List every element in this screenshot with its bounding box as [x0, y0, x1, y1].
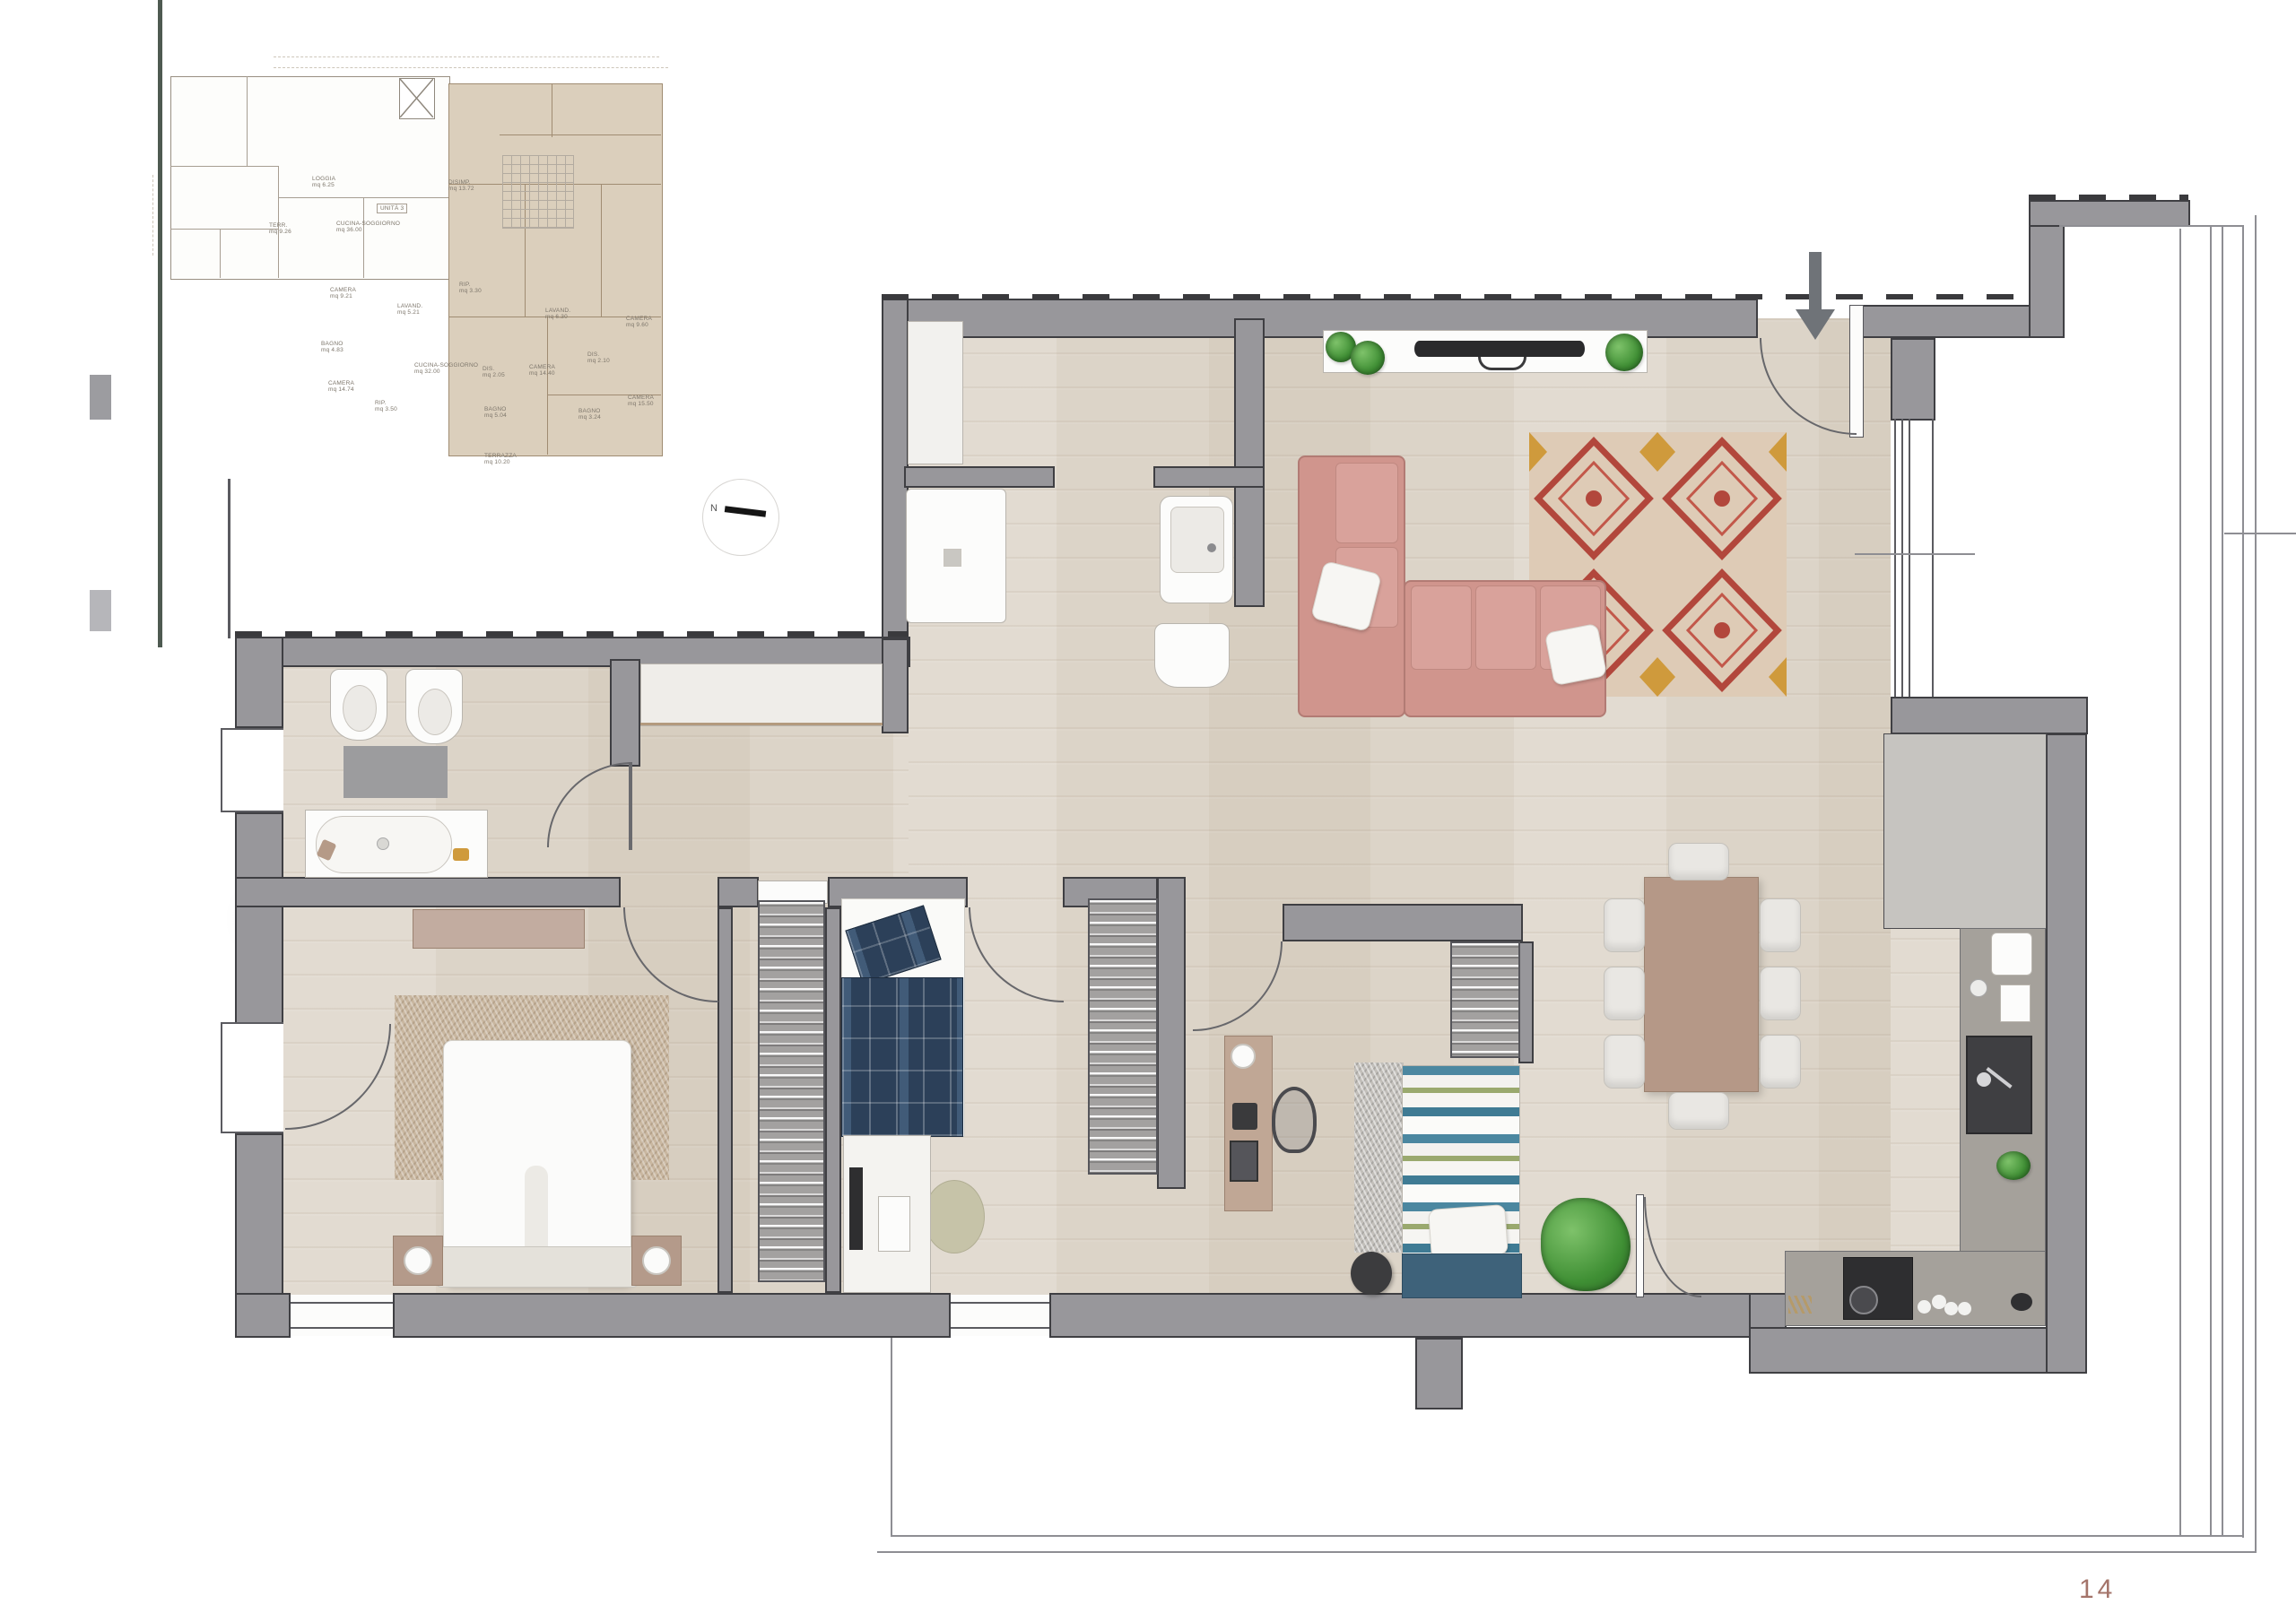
room-label: CAMERAmq 9.60	[626, 316, 652, 328]
facade-pier	[90, 375, 111, 420]
north-indicator: N	[702, 479, 779, 556]
wall	[1891, 338, 1935, 421]
desk-accessory	[878, 1196, 910, 1252]
window-glazing	[1894, 419, 1896, 697]
wall-dashed-line	[882, 294, 2029, 299]
room-label: CAMERAmq 14.40	[529, 364, 555, 377]
plant	[1996, 1151, 2031, 1180]
dining-chair	[1604, 967, 1645, 1020]
tv-stand	[1478, 357, 1526, 370]
window	[291, 1302, 393, 1304]
north-arrow-icon	[725, 506, 767, 517]
room-label: RIP.mq 3.50	[375, 400, 397, 412]
mini-plan-wall	[170, 166, 278, 167]
floor-plan-page: UNITÀ 3 LOGGIAmq 6.25 TERR.mq 9.26 CUCIN…	[0, 0, 2296, 1622]
dining-chair	[1668, 843, 1729, 880]
plant	[1351, 341, 1385, 375]
desk-chair	[1272, 1087, 1317, 1153]
window	[221, 728, 283, 730]
dining-chair	[1604, 898, 1645, 952]
room-label: LAVAND.mq 5.21	[397, 303, 422, 316]
wall	[717, 877, 759, 907]
dining-chair	[1668, 1092, 1729, 1130]
terrace-outline	[2224, 533, 2296, 534]
page-number: 14	[2079, 1574, 2116, 1605]
mini-plan-wall	[363, 197, 364, 278]
terrace-outline	[892, 1535, 2244, 1537]
wardrobe	[1088, 898, 1158, 1175]
window-glazing	[1932, 419, 1934, 697]
terrace-outline	[2222, 227, 2223, 1536]
terrace-outline	[2179, 229, 2181, 1536]
wall	[1153, 466, 1265, 488]
laundry-cabinet	[908, 321, 963, 464]
wall	[235, 1293, 291, 1338]
sofa-cushion	[1475, 585, 1536, 670]
elevator	[399, 78, 435, 119]
wall	[1749, 1327, 2085, 1374]
window	[221, 1132, 283, 1133]
tv	[1414, 341, 1585, 357]
room-label: RIP.mq 3.30	[459, 282, 482, 294]
bedroom2-round-rug	[924, 1180, 985, 1253]
wall	[904, 466, 1055, 488]
north-label: N	[710, 503, 717, 514]
sofa-pillow	[1544, 623, 1607, 686]
bedroom3-rug	[1354, 1063, 1404, 1253]
wall	[235, 637, 910, 667]
room-label: LOGGIAmq 6.25	[312, 176, 335, 188]
hall-cabinet-edge	[640, 723, 883, 725]
wall	[1157, 877, 1186, 1189]
washbasin-bowl	[1170, 507, 1224, 573]
bathtub-faucet	[377, 837, 389, 850]
bed-pillow	[1428, 1204, 1509, 1260]
pot	[1849, 1286, 1878, 1314]
dining-chair	[1760, 898, 1801, 952]
table-lamp	[404, 1246, 432, 1275]
plant	[1605, 334, 1643, 371]
window	[221, 728, 222, 812]
room-label: CAMERAmq 15.50	[628, 395, 654, 407]
wall	[1283, 904, 1523, 941]
wall	[882, 638, 909, 733]
sofa-cushion	[1335, 463, 1398, 543]
wall	[1234, 318, 1265, 607]
kitchen-sink	[1966, 1036, 2032, 1134]
wall	[610, 659, 640, 767]
dish	[1958, 1302, 1971, 1315]
room-label: DISIMP.mq 13.72	[448, 179, 474, 192]
coffee-machine	[1991, 932, 2032, 976]
facade-pier	[90, 590, 111, 631]
mini-floorplan: UNITÀ 3 LOGGIAmq 6.25 TERR.mq 9.26 CUCIN…	[139, 49, 691, 462]
dining-table	[1644, 877, 1759, 1092]
wall	[235, 812, 283, 1024]
toilet-bowl	[418, 689, 452, 735]
wardrobe	[1450, 941, 1520, 1058]
terrace-outline	[2255, 215, 2257, 1553]
room-label: BAGNOmq 4.83	[321, 341, 344, 353]
wall	[1861, 305, 2031, 338]
kitchen-counter	[1785, 1251, 2046, 1326]
dimension-line	[152, 175, 153, 256]
entrance-arrow-icon	[1796, 309, 1835, 340]
window	[221, 1022, 222, 1133]
bed-duvet	[841, 977, 963, 1137]
window	[951, 1302, 1049, 1304]
dining-chair	[1760, 1035, 1801, 1089]
unit-tag: UNITÀ 3	[377, 204, 407, 213]
dining-chair	[1604, 1035, 1645, 1089]
pouf	[1351, 1252, 1392, 1295]
wall	[235, 877, 621, 907]
sofa-cushion	[1411, 585, 1472, 670]
wall	[825, 907, 841, 1293]
wall	[235, 637, 283, 728]
mini-plan-wall	[601, 184, 602, 317]
room-label: BAGNOmq 3.24	[578, 408, 601, 421]
wall	[1891, 697, 2088, 734]
terrace-outline	[877, 1551, 2257, 1553]
utensils	[1788, 1296, 1812, 1314]
bidet-bowl	[343, 685, 377, 732]
dining-chair	[1760, 967, 1801, 1020]
wall	[2029, 200, 2190, 227]
wall	[717, 907, 733, 1293]
wall-dashed-line	[2029, 195, 2188, 200]
door-leaf	[1636, 1194, 1644, 1297]
dish	[1944, 1302, 1958, 1315]
dish	[1918, 1300, 1931, 1314]
room-label: TERR.mq 9.26	[269, 222, 291, 235]
wall	[1518, 941, 1534, 1063]
kitchen-appliance	[2000, 984, 2031, 1022]
room-label: CUCINA-SOGGIORNOmq 32.00	[414, 362, 478, 375]
headboard	[436, 1246, 639, 1288]
hall-cabinet	[640, 664, 883, 726]
wall	[1049, 1293, 1751, 1338]
washbasin-faucet	[1207, 543, 1216, 552]
wall-dashed-line	[235, 631, 909, 637]
cup	[1970, 979, 1987, 997]
monitor	[1230, 1141, 1258, 1182]
scan-line-thin	[228, 479, 230, 638]
table-lamp	[642, 1246, 671, 1275]
mini-plan-wall	[500, 134, 661, 135]
room-label: LAVAND.mq 6.30	[545, 308, 570, 320]
window-mullion	[1855, 553, 1975, 555]
room-label: DIS.mq 2.10	[587, 351, 610, 364]
window	[291, 1295, 393, 1336]
sink-faucet	[1977, 1072, 1991, 1087]
terrace-outline	[2210, 227, 2212, 1536]
dimension-line	[274, 56, 659, 57]
desk-lamp	[1231, 1044, 1256, 1069]
wall	[1415, 1338, 1463, 1409]
mini-plan-wall	[220, 229, 221, 278]
kitchen-tall-cabinet	[1883, 733, 2047, 929]
room-label: CAMERAmq 14.74	[328, 380, 354, 393]
toilet	[1154, 623, 1230, 688]
window-glazing	[1901, 419, 1903, 697]
wall	[2046, 733, 2087, 1374]
kitchen-knob	[2011, 1293, 2032, 1311]
window	[951, 1327, 1049, 1329]
terrace-outline	[2242, 227, 2244, 1538]
bed-blanket	[1402, 1253, 1522, 1298]
terrace-outline	[2059, 225, 2244, 227]
window	[221, 1022, 283, 1024]
window-glazing	[1909, 419, 1910, 697]
mini-plan-wall	[547, 317, 548, 455]
wardrobe	[758, 900, 825, 1282]
mini-plan-wall	[170, 229, 278, 230]
window	[951, 1295, 1049, 1336]
laptop	[849, 1167, 863, 1250]
room-label: TERRAZZAmq 10.20	[484, 453, 517, 465]
dresser	[413, 909, 585, 949]
window	[291, 1327, 393, 1329]
bathroom-mat	[344, 746, 448, 798]
window	[221, 811, 283, 812]
terrace-outline	[891, 1338, 892, 1537]
plant	[1541, 1198, 1631, 1291]
mini-plan-wall	[552, 83, 552, 137]
room-label: BAGNOmq 5.04	[484, 406, 507, 419]
dimension-line	[274, 67, 668, 68]
keyboard	[1232, 1103, 1257, 1130]
stairs	[502, 155, 574, 229]
room-label: DIS.mq 2.05	[483, 366, 505, 378]
soap-tray	[453, 848, 469, 861]
mini-plan-wall	[247, 76, 248, 166]
elevator-x-icon	[400, 79, 433, 117]
shower-drain	[944, 549, 961, 567]
room-label: CUCINA-SOGGIORNOmq 36.00	[336, 221, 400, 233]
entrance-arrow-icon	[1809, 252, 1822, 309]
wall	[393, 1293, 951, 1338]
room-label: CAMERAmq 9.21	[330, 287, 356, 299]
